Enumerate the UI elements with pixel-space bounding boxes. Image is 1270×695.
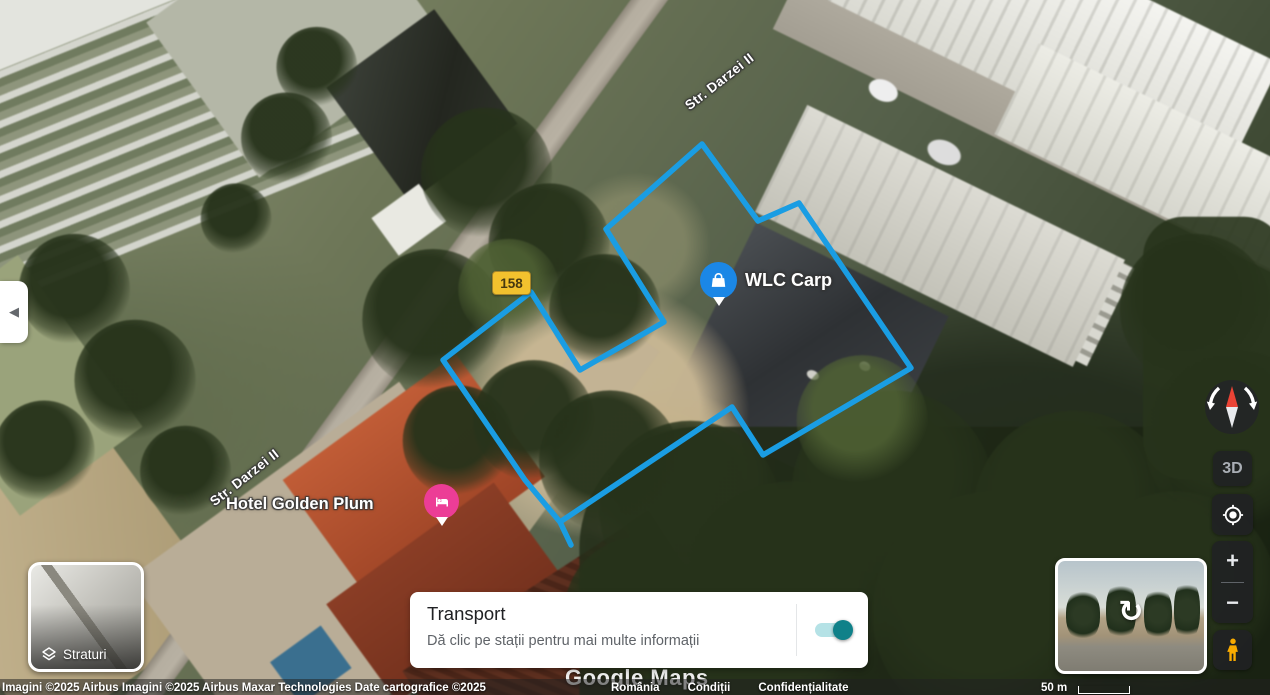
trees	[276, 27, 357, 108]
plus-icon: +	[1226, 548, 1239, 574]
collapse-panel-button[interactable]: ◀	[0, 281, 28, 343]
link-conditii[interactable]: Condiții	[688, 682, 731, 694]
transport-subtitle: Dă clic pe stații pentru mai multe infor…	[427, 633, 796, 649]
pegman-button[interactable]	[1213, 630, 1252, 670]
3d-view-button[interactable]: 3D	[1213, 451, 1252, 486]
wlc-carp-label[interactable]: WLC Carp	[745, 270, 832, 291]
hotel-golden-plum-label[interactable]: Hotel Golden Plum	[226, 495, 374, 514]
wlc-carp-pin[interactable]	[700, 262, 737, 299]
imagery-attribution: Imagini ©2025 Airbus Imagini ©2025 Airbu…	[2, 682, 486, 694]
transport-card: Transport Dă clic pe stații pentru mai m…	[410, 592, 868, 668]
pegman-icon	[1222, 637, 1244, 663]
compass-control[interactable]	[1203, 378, 1261, 436]
transport-toggle-area[interactable]	[797, 592, 868, 668]
compass-icon	[1203, 378, 1261, 441]
layers-icon	[41, 646, 57, 662]
trees	[74, 320, 195, 441]
zoom-in-button[interactable]: +	[1212, 541, 1253, 582]
my-location-button[interactable]	[1212, 494, 1253, 535]
street-view-thumbnail[interactable]: ↻	[1055, 558, 1207, 674]
zoom-out-button[interactable]: −	[1212, 583, 1253, 624]
trees	[797, 355, 928, 486]
pin-tail	[713, 297, 725, 306]
minus-icon: −	[1226, 590, 1239, 616]
streetview-rotate-icon: ↻	[1118, 594, 1143, 629]
link-confidentialitate[interactable]: Confidențialitate	[758, 682, 848, 694]
shopping-bag-icon	[709, 271, 728, 290]
thumb-tree	[1144, 587, 1172, 641]
thumb-tree	[1174, 579, 1200, 641]
zoom-control: + −	[1212, 541, 1253, 623]
scale-label[interactable]: 50 m	[1041, 682, 1067, 694]
route-badge-158: 158	[492, 271, 531, 295]
trees	[201, 183, 272, 254]
toggle-knob	[833, 620, 853, 640]
3d-label: 3D	[1222, 460, 1242, 478]
trees	[549, 254, 660, 365]
my-location-icon	[1222, 504, 1244, 526]
google-maps-satellite-view[interactable]: Str. Darzei II Str. Darzei II 158 WLC Ca…	[0, 0, 1270, 695]
trees	[1120, 234, 1270, 385]
back-arrow-icon: ◀	[9, 304, 19, 320]
bed-icon	[433, 493, 451, 511]
layers-label: Straturi	[63, 647, 107, 662]
hotel-golden-plum-pin[interactable]	[424, 484, 459, 519]
transport-toggle[interactable]	[815, 623, 851, 637]
link-romania[interactable]: România	[611, 682, 660, 694]
trees	[403, 385, 514, 496]
layers-button[interactable]: Straturi	[28, 562, 144, 672]
pin-tail	[436, 517, 448, 526]
scale-bar	[1078, 686, 1130, 694]
thumb-tree	[1066, 589, 1100, 641]
attribution-links: România Condiții Confidențialitate	[611, 682, 848, 694]
transport-title: Transport	[427, 603, 796, 625]
